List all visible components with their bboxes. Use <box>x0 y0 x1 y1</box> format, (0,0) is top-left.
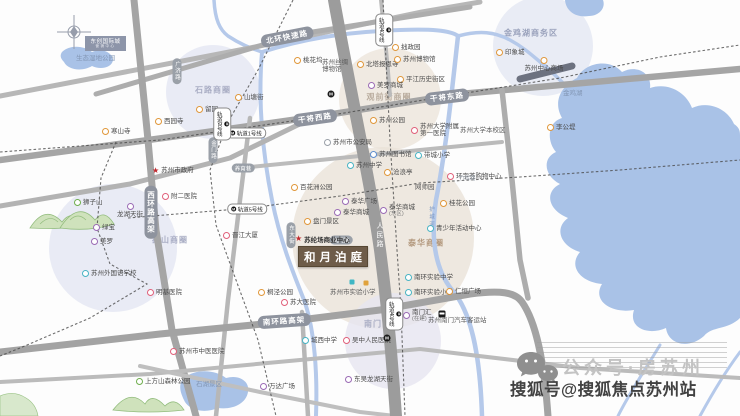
poi-dot-icon <box>127 203 134 210</box>
road-name-pill: 干将东路 <box>424 88 469 106</box>
map-label: 苏州市公安局 <box>324 139 372 146</box>
poi-dot-icon <box>547 124 554 131</box>
poi-dot-icon <box>136 378 143 385</box>
road-name-pill: 金门路 <box>209 137 218 163</box>
map-label: 山塘街 <box>235 94 264 101</box>
map-label: 晋江大厦 <box>223 232 258 239</box>
poi-dot-icon <box>347 162 354 169</box>
poi-dot-icon <box>235 94 242 101</box>
map-label: 苏州中学 <box>347 162 382 169</box>
poi-dot-icon <box>446 288 453 295</box>
poi-dot-icon <box>415 152 422 159</box>
map-label: 苏州市实验小学 <box>330 289 376 296</box>
poi-dot-icon <box>405 274 412 281</box>
map-label: 附二医院 <box>162 193 197 200</box>
poi-dot-icon <box>447 173 454 180</box>
on-road-label: 人民路 <box>374 222 384 249</box>
map-label: 苏州大学本校区 <box>460 127 506 134</box>
map-label: 绿宝 <box>93 224 115 231</box>
map-label: 泰华商城 <box>334 209 369 216</box>
poi-dot-icon <box>302 337 309 344</box>
sohu-account-text: 搜狐号@搜狐焦点苏州站 <box>510 376 697 400</box>
poi-dot-icon <box>74 199 81 206</box>
map-label: 平江历史街区 <box>397 76 445 83</box>
metro-logo-icon: M <box>386 28 391 33</box>
map-label: 东吴龙湖天街 <box>345 376 393 383</box>
metro-logo-icon: M <box>230 131 235 136</box>
map-label: 印象城 <box>496 49 525 56</box>
poi-dot-icon <box>258 289 265 296</box>
metro-line-pill: M轨道2号线 <box>213 107 231 140</box>
poi-dot-icon <box>384 169 391 176</box>
poi-dot-icon <box>304 218 311 225</box>
map-label: 桃花坞 <box>294 57 323 64</box>
poi-dot-icon <box>370 117 377 124</box>
road-name-pill: 北环快速路 <box>260 26 314 49</box>
poi-dot-icon <box>405 289 412 296</box>
poi-dot-icon <box>440 200 447 207</box>
poi-dot-icon <box>496 49 503 56</box>
map-label: 上方山森林公园 <box>136 378 191 385</box>
map-label: 沧浪亭 <box>384 169 413 176</box>
map-label: 北塔报恩寺 <box>357 61 399 68</box>
poi-dot-icon <box>394 56 401 63</box>
metro-line-pill: M轨道4号线 <box>375 13 393 46</box>
map-label: 苏州图书馆 <box>370 151 412 158</box>
project-subtitle: 营销中心 <box>96 45 116 49</box>
poi-dot-icon <box>196 106 203 113</box>
poi-dot-icon <box>102 128 109 135</box>
map-label: 泰华商城(东区) <box>380 204 415 218</box>
metro-logo-icon: M <box>224 122 229 127</box>
poi-dot-icon <box>541 57 548 64</box>
project-signboard: 东创国际城 营销中心 <box>85 36 126 51</box>
property-name-box: 和月泊庭 <box>298 246 368 267</box>
on-road-label: 护城河 <box>427 206 435 229</box>
poi-dot-icon <box>162 193 169 200</box>
star-icon: ★ <box>295 235 302 243</box>
poi-dot-icon <box>411 127 418 134</box>
map-label: 仁恒广场 <box>446 288 481 295</box>
map-label: 盘门景区 <box>304 218 339 225</box>
metro-logo-icon: M <box>396 312 401 317</box>
map-label: 寒山寺 <box>102 128 131 135</box>
poi-dot-icon <box>392 44 399 51</box>
poi-dot-icon <box>147 289 154 296</box>
metro-logo-icon: M <box>231 207 236 212</box>
poi-dot-icon <box>324 139 331 146</box>
poi-dot-icon <box>343 337 350 344</box>
road-name-pill: 养育巷 <box>232 164 255 173</box>
metro-line-pill: M轨道4号线 <box>385 297 403 330</box>
map-label: 龙湖天街 <box>117 203 143 218</box>
metro-line-pill: M轨道5号线 <box>227 204 267 215</box>
map-label: 苏州博物馆 <box>394 56 436 63</box>
metro-line-pill: M轨道1号线 <box>226 128 266 139</box>
map-label: 苏州中心商场 <box>525 57 564 72</box>
poi-dot-icon <box>291 184 298 191</box>
map-label: 桐泾公园 <box>258 289 293 296</box>
road-name-pill: 南环路高架 <box>257 313 310 330</box>
map-label: ★苏州市政府 <box>152 167 194 175</box>
poi-dot-icon <box>334 209 341 216</box>
map-label: 万达广场 <box>260 383 295 390</box>
map-label: 李公堤 <box>547 124 576 131</box>
map-label: 苏州公园 <box>370 117 405 124</box>
map-label: 金鸡湖 <box>563 90 583 97</box>
poi-dot-icon <box>170 348 177 355</box>
star-icon: ★ <box>152 167 159 175</box>
bus-station-icon <box>439 311 446 318</box>
map-label: 南环实验中学 <box>405 274 453 281</box>
poi-dot-icon <box>370 151 377 158</box>
poi-dot-icon <box>91 238 98 245</box>
poi-dot-icon <box>345 376 352 383</box>
map-label: 苏州丝绸博物馆 <box>322 59 352 74</box>
road-name-pill: 西环路高架 <box>145 186 158 239</box>
map-label: 美罗商城 <box>368 82 403 89</box>
property-marker: ★ 苏纶场商业中心 <box>295 234 350 244</box>
map-label: 桂花公园 <box>440 200 475 207</box>
map-label: 石湖景区 <box>196 381 222 388</box>
map-label: 带城小学 <box>415 152 450 159</box>
poi-dot-icon <box>403 312 410 319</box>
poi-dot-icon <box>368 82 375 89</box>
poi-dot-icon <box>357 61 364 68</box>
map-label: 生态湿地公园 <box>76 55 115 62</box>
map-label: 网师园 <box>415 184 435 191</box>
school-icon-teal <box>350 280 355 285</box>
map-label: 苏州外国语学校 <box>82 270 137 277</box>
map-label: 拙政园 <box>392 44 421 51</box>
map-label: 西园寺 <box>155 118 184 125</box>
poi-dot-icon <box>281 299 288 306</box>
map-label: 泰华广场 <box>342 198 377 205</box>
poi-dot-icon <box>93 224 100 231</box>
map-label: 竹辉路 <box>459 176 476 182</box>
poi-dot-icon <box>155 118 162 125</box>
map-label: 美罗 <box>91 238 113 245</box>
watermark: 公众号·房苏州 搜狐号@搜狐焦点苏州站 <box>510 350 740 416</box>
map-label: 青少年活动中心 <box>427 225 482 232</box>
poi-dot-icon <box>223 232 230 239</box>
metro-station-icon: M <box>328 91 335 98</box>
road-name-pill: 干将西路 <box>292 109 337 128</box>
road-name-pill: 广济路 <box>173 58 182 84</box>
poi-dot-icon <box>260 383 267 390</box>
poi-dot-icon <box>82 270 89 277</box>
map-label: 苏州大学附属第一医院 <box>411 123 462 138</box>
school-icon-amber <box>364 281 369 286</box>
property-marker-label: 苏纶场商业中心 <box>304 234 350 244</box>
map-label: 苏大医院 <box>281 299 316 306</box>
poi-dot-icon <box>342 198 349 205</box>
metro-station-icon: M <box>384 335 391 342</box>
map-label: 百花洲公园 <box>291 184 333 191</box>
poi-dot-icon <box>294 57 301 64</box>
property-name: 和月泊庭 <box>304 249 366 265</box>
map-label: 城西中学 <box>302 337 337 344</box>
poi-dot-icon <box>380 207 387 214</box>
map-label: 苏州市中医医院 <box>170 348 225 355</box>
map-label: 狮子山 <box>74 199 103 206</box>
map-label: 明基医院 <box>147 289 182 296</box>
map-root: 石路商圈观前街商圈泰华商圈狮山商圈南门商圈金鸡湖商务区 <box>0 0 740 416</box>
map-label: 苏州南门汽车客运站 <box>428 317 487 324</box>
